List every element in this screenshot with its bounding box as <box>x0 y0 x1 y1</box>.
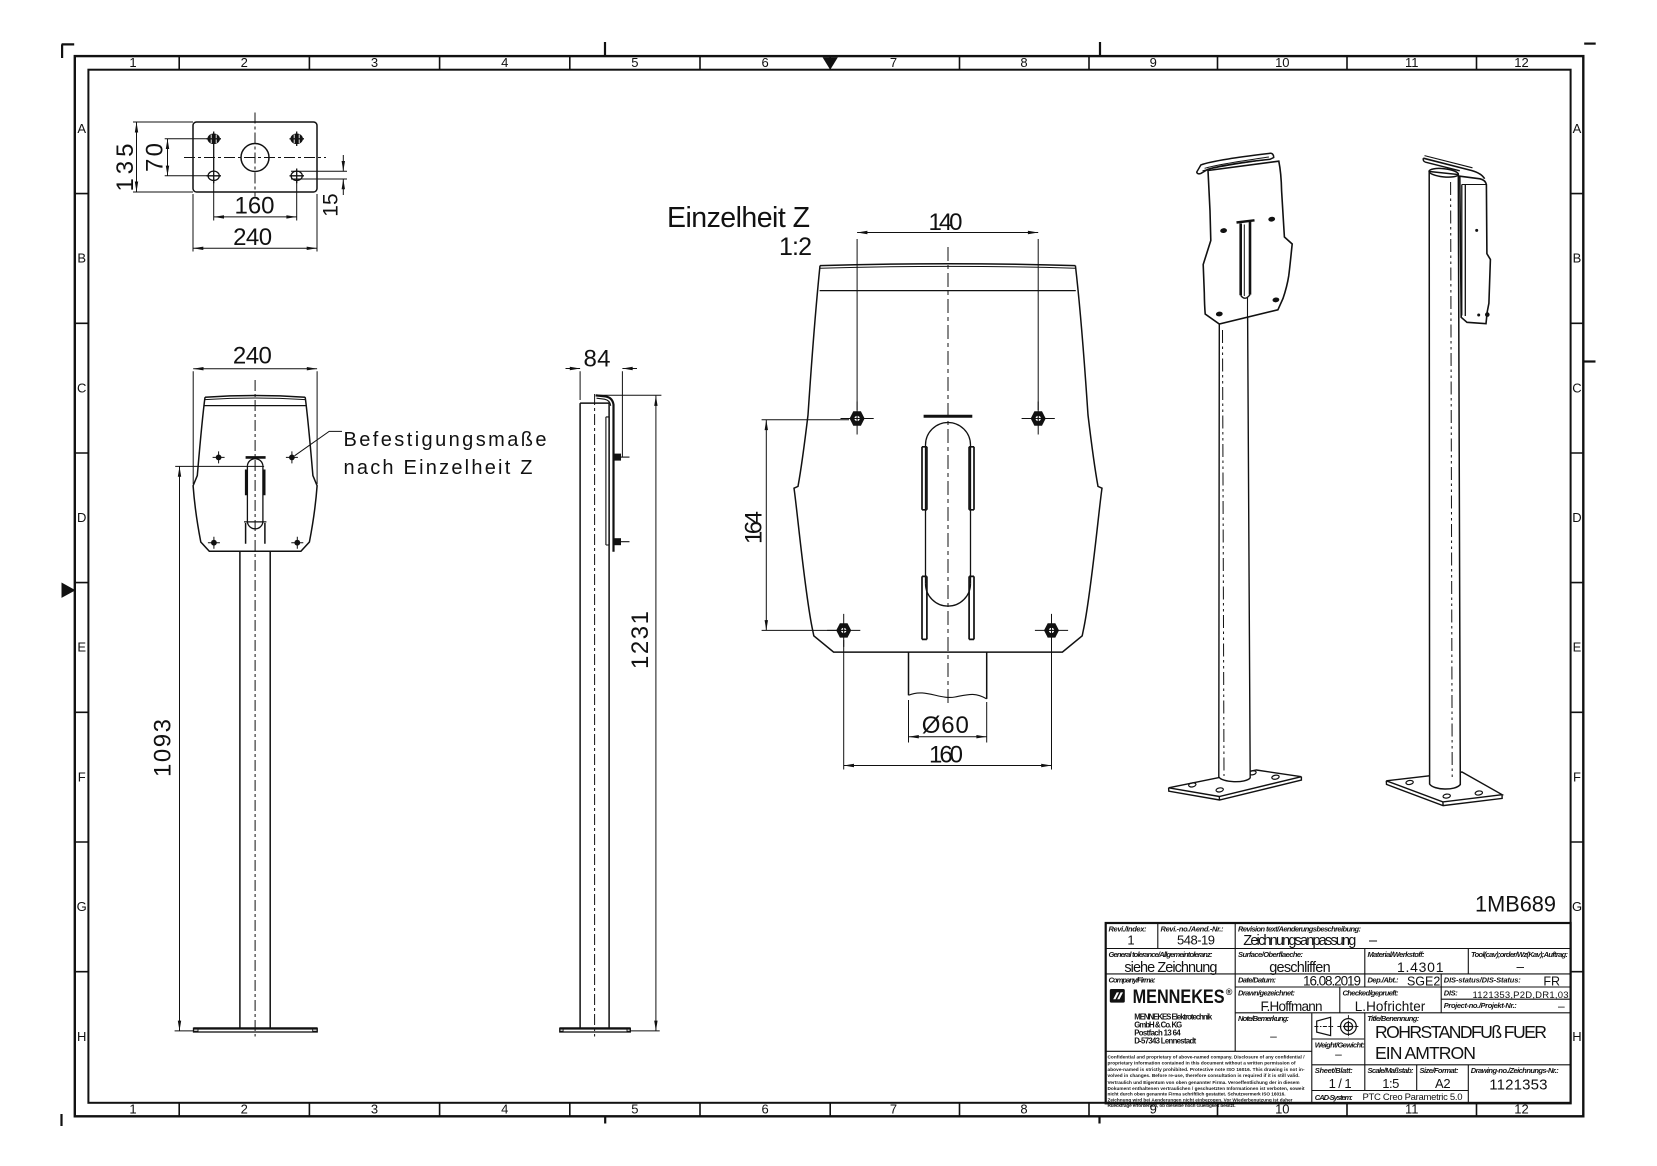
svg-text:Material/Werkstoff:: Material/Werkstoff: <box>1368 950 1426 959</box>
svg-text:volved in changes. Before re-u: volved in changes. Before re-use, theref… <box>1108 1073 1300 1078</box>
svg-text:DIS-status/DIS-Status:: DIS-status/DIS-Status: <box>1444 975 1522 984</box>
svg-text:C: C <box>1572 380 1581 395</box>
svg-text:Company/Firma:: Company/Firma: <box>1109 975 1157 984</box>
svg-text:6: 6 <box>761 1102 768 1117</box>
svg-text:D-57343 Lennestadt: D-57343 Lennestadt <box>1134 1037 1196 1046</box>
svg-text:–: – <box>1517 959 1525 974</box>
svg-text:160: 160 <box>235 193 275 220</box>
svg-text:B: B <box>1573 251 1582 266</box>
svg-text:5: 5 <box>631 55 638 70</box>
svg-text:3: 3 <box>371 55 378 70</box>
svg-text:Drawn/gezeichnet:: Drawn/gezeichnet: <box>1238 988 1296 997</box>
svg-text:siehe Zeichnung: siehe Zeichnung <box>1124 960 1217 976</box>
svg-text:E: E <box>77 640 86 655</box>
svg-text:Befestigungsmaße: Befestigungsmaße <box>344 429 547 451</box>
svg-text:D: D <box>1572 510 1581 525</box>
svg-text:1121353: 1121353 <box>1489 1077 1547 1094</box>
svg-text:Scale/Maßstab:: Scale/Maßstab: <box>1368 1066 1415 1075</box>
svg-text:2: 2 <box>241 1102 248 1117</box>
svg-text:16.08.2019: 16.08.2019 <box>1303 973 1361 988</box>
svg-text:G: G <box>1572 899 1582 914</box>
svg-text:–: – <box>1558 999 1565 1013</box>
svg-text:240: 240 <box>233 224 272 251</box>
svg-text:above-named is strictly prohib: above-named is strictly prohibited. Prot… <box>1108 1067 1305 1072</box>
svg-text:7: 7 <box>890 55 897 70</box>
svg-text:®: ® <box>1226 987 1233 997</box>
svg-text:Confidential and proprietary o: Confidential and proprietary of above-na… <box>1108 1055 1306 1060</box>
svg-text:D: D <box>77 510 86 525</box>
svg-text:135: 135 <box>112 144 139 192</box>
svg-text:4: 4 <box>501 1102 508 1117</box>
svg-text:Project-no./Projekt-Nr.:: Project-no./Projekt-Nr.: <box>1444 1001 1518 1010</box>
svg-text:160: 160 <box>929 742 963 769</box>
svg-text:C: C <box>77 380 86 395</box>
svg-text:Sheet/Blatt:: Sheet/Blatt: <box>1315 1066 1354 1075</box>
svg-text:FR: FR <box>1543 974 1560 988</box>
svg-text:nicht durch oben genannte Firm: nicht durch oben genannte Firma schriftl… <box>1108 1092 1286 1097</box>
svg-text:3: 3 <box>371 1102 378 1117</box>
svg-text:9: 9 <box>1150 55 1157 70</box>
svg-text:548-19: 548-19 <box>1177 932 1215 947</box>
svg-text:Vertraulich und Eigentum von o: Vertraulich und Eigentum von oben genann… <box>1108 1080 1300 1085</box>
svg-text:1.4301: 1.4301 <box>1397 959 1444 975</box>
svg-text:F: F <box>1573 769 1581 784</box>
svg-text:140: 140 <box>929 209 963 236</box>
svg-text:proprietary information contai: proprietary information contained in thi… <box>1108 1061 1296 1066</box>
svg-text:2: 2 <box>241 55 248 70</box>
svg-text:1:2: 1:2 <box>779 233 812 261</box>
svg-text:12: 12 <box>1514 55 1528 70</box>
svg-text:A: A <box>77 121 86 136</box>
svg-text:1:5: 1:5 <box>1382 1076 1399 1091</box>
svg-text:ROHRSTANDFUß FUER: ROHRSTANDFUß FUER <box>1375 1022 1547 1042</box>
svg-text:15: 15 <box>320 193 343 216</box>
svg-text:7: 7 <box>890 1102 897 1117</box>
svg-text:1: 1 <box>1127 932 1134 947</box>
svg-text:Drawing-no./Zeichnungs-Nr.:: Drawing-no./Zeichnungs-Nr.: <box>1471 1066 1560 1075</box>
svg-text:Surface/Oberflaeche:: Surface/Oberflaeche: <box>1238 950 1304 959</box>
svg-text:Date/Datum:: Date/Datum: <box>1238 975 1277 984</box>
svg-text:PTC Creo Parametric 5.0: PTC Creo Parametric 5.0 <box>1363 1092 1463 1103</box>
svg-text:H: H <box>77 1029 86 1044</box>
svg-text:Tool(cav);order/Wz(Kav);Auftra: Tool(cav);order/Wz(Kav);Auftrag: <box>1471 950 1569 959</box>
svg-text:Zeichnung wird bei Aenderungen: Zeichnung wird bei Aenderungen nicht ein… <box>1108 1097 1293 1102</box>
svg-text:–: – <box>1369 933 1378 949</box>
svg-text:Dep./Abt.:: Dep./Abt.: <box>1368 975 1400 984</box>
svg-text:–: – <box>1335 1047 1342 1061</box>
svg-text:10: 10 <box>1275 55 1289 70</box>
svg-text:240: 240 <box>233 343 272 370</box>
svg-text:DIS:: DIS: <box>1444 989 1459 998</box>
svg-text:F.Hoffmann: F.Hoffmann <box>1261 999 1323 1014</box>
svg-text:1: 1 <box>129 55 136 70</box>
svg-text:H: H <box>1572 1029 1581 1044</box>
svg-text:8: 8 <box>1020 55 1027 70</box>
svg-text:A2: A2 <box>1435 1076 1451 1091</box>
svg-text:8: 8 <box>1020 1102 1027 1117</box>
svg-text:6: 6 <box>761 55 768 70</box>
svg-text:Size/Format:: Size/Format: <box>1420 1066 1460 1075</box>
svg-text:1MB689: 1MB689 <box>1475 892 1556 917</box>
svg-text:164: 164 <box>741 511 768 544</box>
svg-text:–: – <box>1270 1029 1277 1043</box>
svg-text:G: G <box>77 899 87 914</box>
svg-text:4: 4 <box>501 55 508 70</box>
svg-text:Ø60: Ø60 <box>922 712 969 739</box>
svg-text:11: 11 <box>1405 55 1419 70</box>
svg-text:B: B <box>77 251 86 266</box>
svg-text:Checked/geprueft:: Checked/geprueft: <box>1343 988 1400 997</box>
svg-text:SGE2: SGE2 <box>1407 975 1440 989</box>
svg-text:F: F <box>78 769 86 784</box>
svg-text:A: A <box>1573 121 1582 136</box>
svg-text:Zeichnungsanpassung: Zeichnungsanpassung <box>1243 933 1356 949</box>
svg-text:Dokument enthaltenen vertrauli: Dokument enthaltenen vertraulichen / ges… <box>1108 1086 1305 1091</box>
svg-text:EIN AMTRON: EIN AMTRON <box>1375 1043 1476 1063</box>
svg-text:L.Hofrichter: L.Hofrichter <box>1355 999 1426 1014</box>
svg-text:E: E <box>1573 640 1582 655</box>
svg-text:Note/Bemerkung:: Note/Bemerkung: <box>1238 1014 1290 1023</box>
svg-text:CAD-System:: CAD-System: <box>1315 1093 1354 1102</box>
svg-text:5: 5 <box>631 1102 638 1117</box>
svg-text:General tolerance/Allgemeintol: General tolerance/Allgemeintoleranz: <box>1109 950 1214 959</box>
svg-text:Rueckfrage erforderlich, ob di: Rueckfrage erforderlich, ob dieselbe noc… <box>1108 1103 1236 1108</box>
svg-text:1: 1 <box>129 1102 136 1117</box>
svg-text:84: 84 <box>584 346 611 373</box>
svg-text:1093: 1093 <box>150 719 177 777</box>
svg-text:Einzelheit Z: Einzelheit Z <box>667 202 810 234</box>
svg-text:MENNEKES: MENNEKES <box>1133 986 1225 1008</box>
svg-text:1/1: 1/1 <box>1329 1076 1352 1091</box>
svg-text:1231: 1231 <box>627 611 654 669</box>
svg-text:1121353,P2D,DR1,03: 1121353,P2D,DR1,03 <box>1473 990 1569 1001</box>
